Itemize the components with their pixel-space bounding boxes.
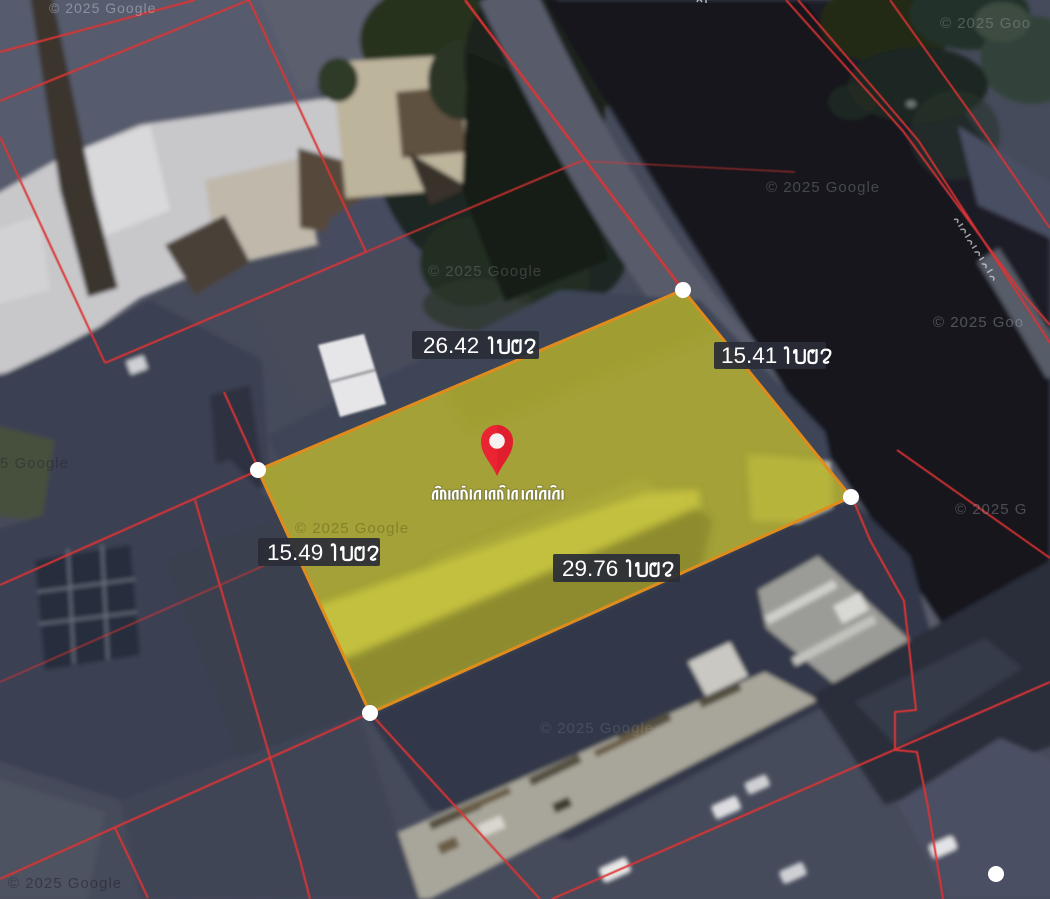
svg-text:29.76: 29.76 xyxy=(562,556,618,581)
svg-text:26.42: 26.42 xyxy=(423,333,479,358)
svg-text:15.49: 15.49 xyxy=(267,540,323,565)
svg-text:15.41: 15.41 xyxy=(721,343,777,368)
svg-text:© 2025 Goo: © 2025 Goo xyxy=(940,15,1031,32)
svg-text:© 2025 Goo: © 2025 Goo xyxy=(933,314,1024,331)
svg-text:© 2025 Google: © 2025 Google xyxy=(49,0,156,16)
svg-text:© 2025 G: © 2025 G xyxy=(955,501,1027,518)
svg-text:© 2025 Google: © 2025 Google xyxy=(8,875,122,892)
svg-text:© 2025 Google: © 2025 Google xyxy=(540,720,654,737)
svg-text:© 2025 Google: © 2025 Google xyxy=(295,520,409,537)
svg-text:© 2025 Google: © 2025 Google xyxy=(766,179,880,196)
svg-text:2025 Google: 2025 Google xyxy=(0,455,69,472)
svg-text:© 2025 Google: © 2025 Google xyxy=(428,263,542,280)
